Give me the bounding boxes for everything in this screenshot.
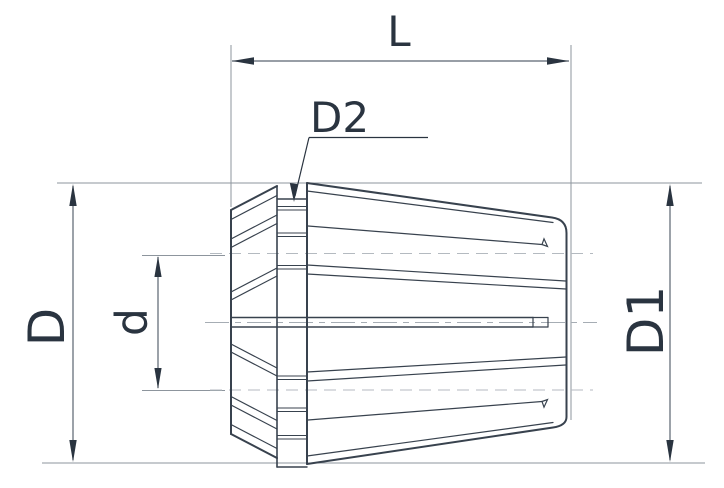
label-D1: D1	[617, 286, 675, 356]
flute-end-bottom	[542, 400, 548, 408]
label-L: L	[387, 7, 411, 56]
D-arrow-down	[69, 440, 76, 462]
D-arrow-up	[69, 184, 76, 206]
D1-arrow-up	[666, 184, 673, 206]
callout-D2: D2	[290, 93, 428, 202]
technical-drawing: L D d D1 D2	[0, 0, 724, 488]
flute-end-top	[542, 239, 548, 247]
label-d: d	[107, 308, 158, 336]
body-outline	[307, 183, 567, 464]
collet-main-body	[231, 183, 567, 464]
label-D: D	[18, 308, 76, 347]
L-arrow-right	[547, 57, 569, 65]
D1-arrow-down	[666, 440, 673, 462]
dimension-d: d	[107, 256, 162, 389]
dimension-L: L	[232, 7, 569, 65]
L-arrow-left	[232, 57, 254, 65]
d-arrow-down	[154, 368, 161, 389]
collet	[231, 183, 567, 467]
label-D2: D2	[310, 93, 369, 142]
hidden-bore-lines	[210, 254, 593, 391]
collet-diagram-svg: L D d D1 D2	[0, 0, 724, 488]
dimension-D1: D1	[617, 184, 675, 462]
d-arrow-up	[154, 256, 161, 277]
dimension-D: D	[18, 184, 77, 462]
